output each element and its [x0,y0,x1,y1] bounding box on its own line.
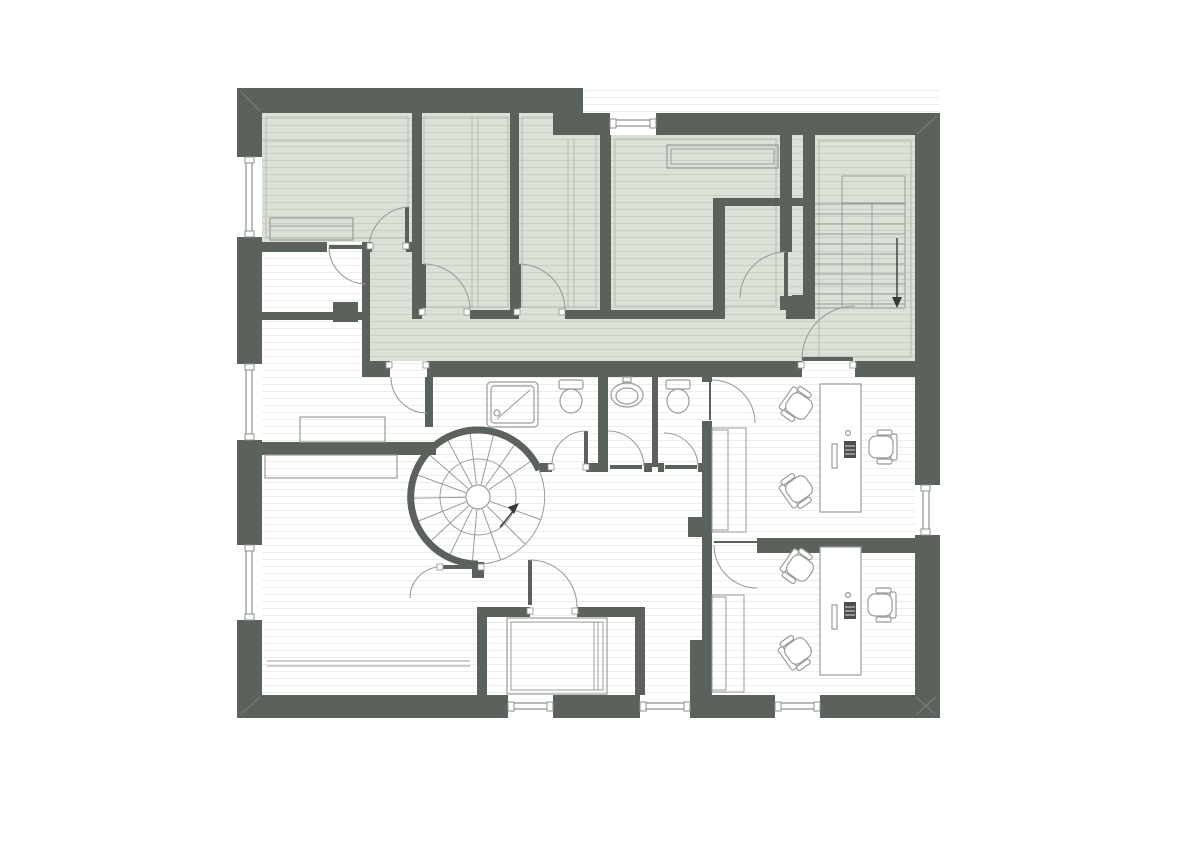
floor-plan-page [0,0,1200,848]
window-bottom-2 [640,695,690,718]
window-left-1 [237,157,262,237]
keyboard-icon [844,441,856,458]
floor-plan-canvas [0,0,1200,848]
window-right [915,485,940,535]
window-bottom-1 [508,695,553,718]
window-left-3 [237,545,262,620]
window-top [610,113,656,135]
window-bottom-3 [775,695,820,718]
keyboard-icon [844,602,856,619]
window-left-2 [237,364,262,440]
